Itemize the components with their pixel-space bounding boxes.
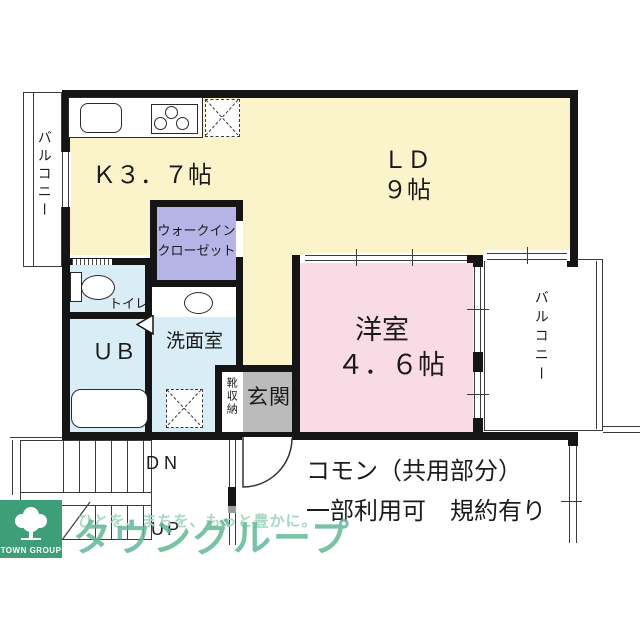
balcony-right-rail — [596, 261, 597, 429]
floorplan-page: { "plan": { "rooms": { "kitchen": {"labe… — [0, 0, 640, 641]
bathtub — [71, 389, 148, 428]
exterior-line — [10, 437, 62, 438]
wall-bottom — [62, 432, 578, 440]
window-line — [474, 372, 475, 418]
town-group-logo: TOWN GROUP — [0, 500, 62, 558]
balcony-left-rail — [33, 92, 34, 267]
toilet-vent-window — [72, 259, 112, 265]
tree-icon — [11, 505, 51, 543]
wall-entrance-top — [215, 365, 300, 372]
sliding-door-tick — [356, 249, 357, 266]
stove-burner — [165, 106, 178, 119]
corridor-wall-post — [228, 487, 236, 506]
kitchen-window-line — [62, 152, 63, 207]
stair-tread — [63, 440, 64, 492]
balcony-left-label: バルコニー — [36, 130, 53, 220]
living-dining-size: ９帖 — [383, 177, 431, 206]
bath-door-mark — [136, 315, 154, 335]
living-dining-label: ＬＤ — [383, 147, 431, 176]
washroom-label: 洗面室 — [166, 331, 223, 354]
washbasin — [184, 292, 213, 314]
fence-post — [568, 437, 578, 446]
window-line — [480, 372, 481, 418]
kitchen-sink — [80, 103, 122, 133]
sliding-door-line — [305, 255, 467, 256]
shoe-storage-label: 靴収納 — [224, 377, 237, 416]
stove-burner — [154, 117, 167, 130]
kitchen-label: Ｋ３．７帖 — [92, 162, 212, 191]
window-tick — [527, 247, 528, 264]
refrigerator-space — [205, 99, 240, 137]
sliding-door-tick — [412, 249, 413, 266]
wall-bedroom-left — [292, 255, 300, 432]
wall-washroom-hall — [236, 287, 243, 372]
walk-in-closet-door-opening — [236, 221, 243, 257]
common-area-note-line1: コモン（共用部分） — [306, 451, 522, 486]
stair-tread — [127, 440, 128, 492]
sliding-door-line — [305, 260, 467, 261]
entrance-door-swing — [242, 437, 293, 488]
window-tick — [467, 309, 489, 310]
stove-burner — [176, 117, 189, 130]
balcony-right-label: バルコニー — [533, 290, 550, 385]
unit-bath-label: ＵＢ — [92, 339, 136, 365]
kitchen-window-line — [68, 152, 69, 207]
toilet-label: トイレ — [109, 296, 148, 312]
bedroom-size: ４．６帖 — [337, 349, 445, 381]
stair-tread — [143, 440, 144, 492]
exterior-line — [12, 440, 13, 495]
window-tick — [467, 394, 489, 395]
wall-bedroom-top-right — [465, 255, 483, 263]
stair-landing-line — [20, 492, 152, 493]
walk-in-closet-label-line1: ウォークイン — [157, 223, 236, 239]
fence-line — [576, 446, 577, 543]
wall-left — [62, 90, 70, 440]
fence-line — [569, 446, 570, 543]
washing-machine-space — [166, 389, 203, 428]
town-group-caption: TOWN GROUP — [0, 546, 62, 555]
stair-tread — [95, 440, 96, 492]
stair-tread — [79, 440, 80, 492]
wall-shoe-left — [215, 372, 222, 432]
bedroom-area — [300, 263, 473, 432]
entrance-label: 玄関 — [247, 385, 291, 410]
stair-tread — [111, 440, 112, 492]
walk-in-closet-label-line2: クローゼット — [157, 243, 236, 259]
fence-tick — [561, 501, 582, 502]
exterior-line — [603, 426, 640, 427]
exterior-line — [603, 432, 640, 433]
stairs-down-label: DN — [146, 453, 182, 475]
watermark-brand: タウングループ — [73, 520, 351, 558]
bedroom-label: 洋室 — [355, 314, 409, 346]
wall-right — [570, 90, 578, 267]
